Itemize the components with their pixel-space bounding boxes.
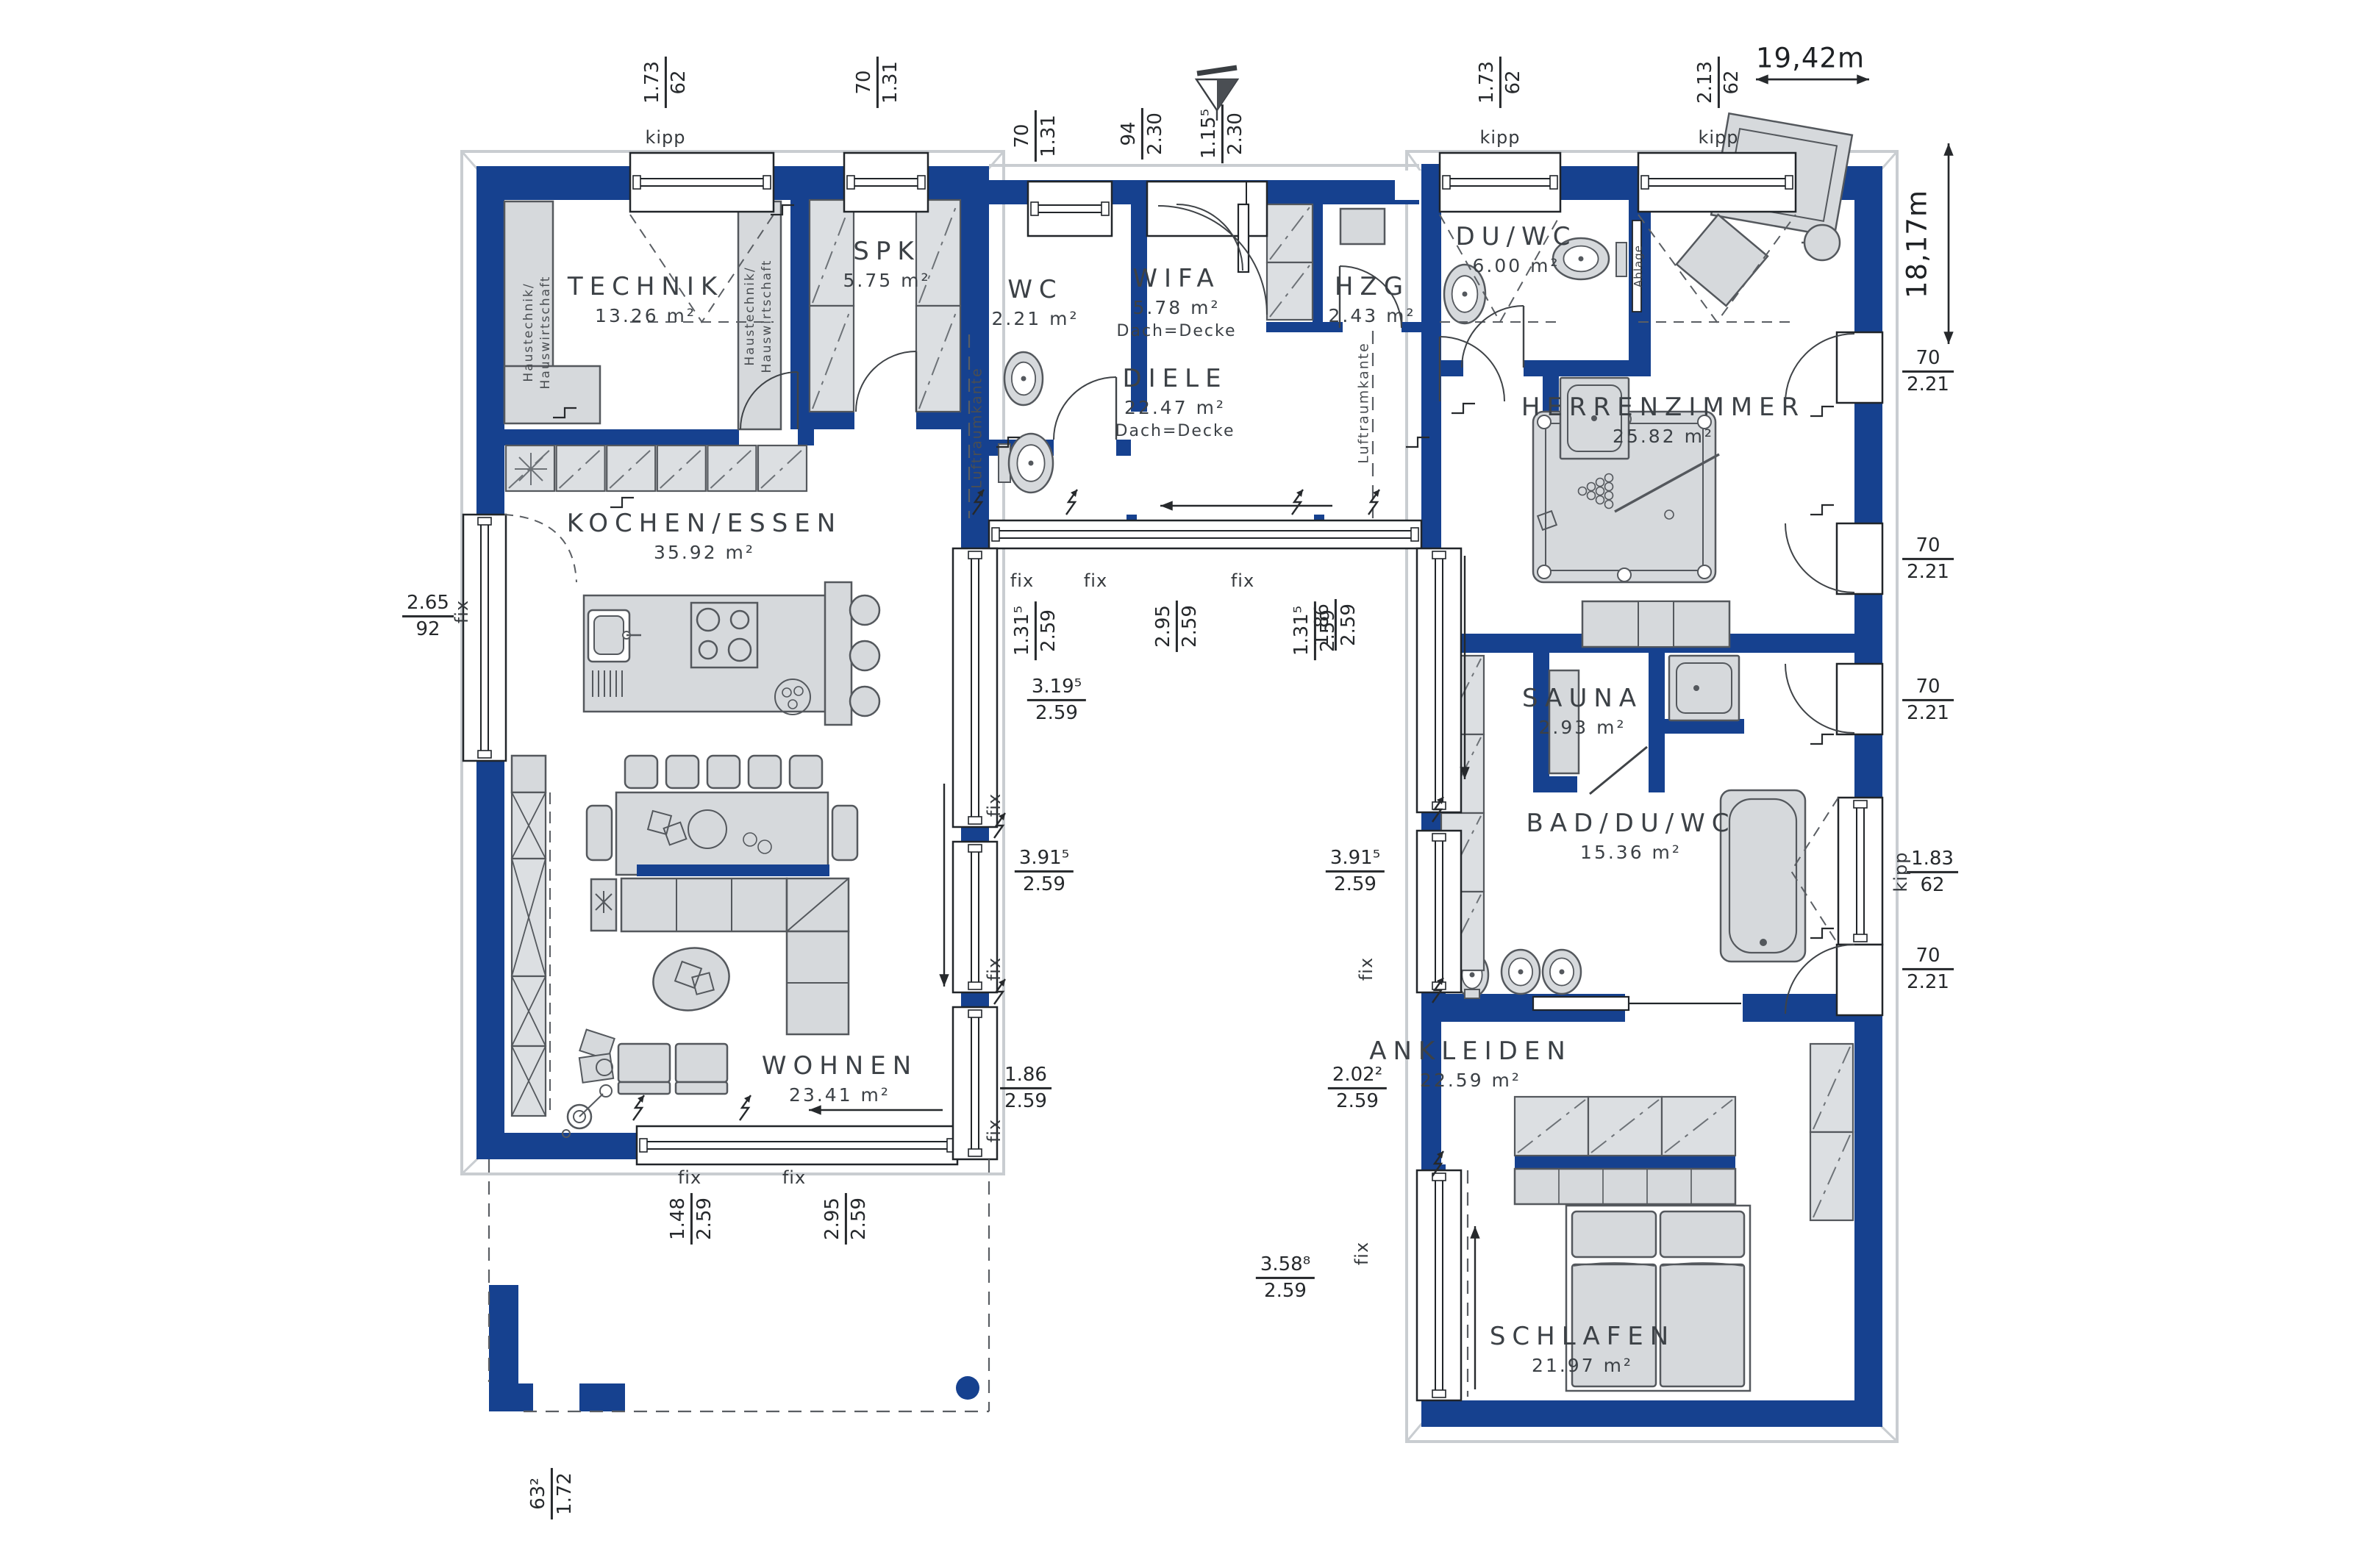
floor-plan: TECHNIK13.26 m²SPK5.75 m²WC2.21 m²WIFA5.…: [0, 0, 2353, 1568]
cabinets-x: [512, 792, 550, 1116]
floorplan-page: { "plan": { "overall": [ {"text":"19,42m…: [0, 0, 2353, 1568]
plan-drawing: [0, 0, 2353, 1568]
